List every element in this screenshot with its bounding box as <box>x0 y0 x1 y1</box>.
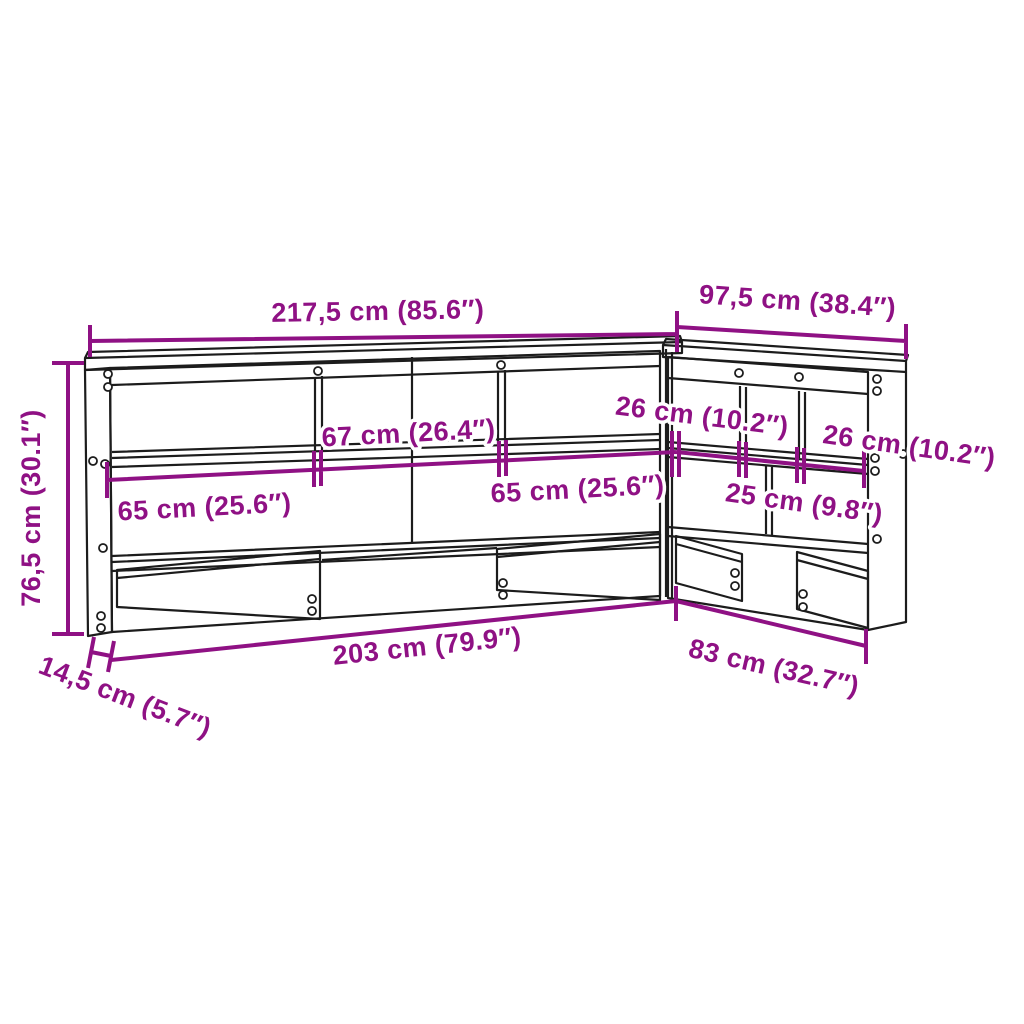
dim-height: 76,5 cm (30.1″) <box>16 409 46 607</box>
diagram-canvas: 217,5 cm (85.6″) 97,5 cm (38.4″) 76,5 cm… <box>0 0 1024 1024</box>
furniture-dimension-diagram: 217,5 cm (85.6″) 97,5 cm (38.4″) 76,5 cm… <box>0 0 1024 1024</box>
dim-top-width: 217,5 cm (85.6″) <box>271 294 485 328</box>
